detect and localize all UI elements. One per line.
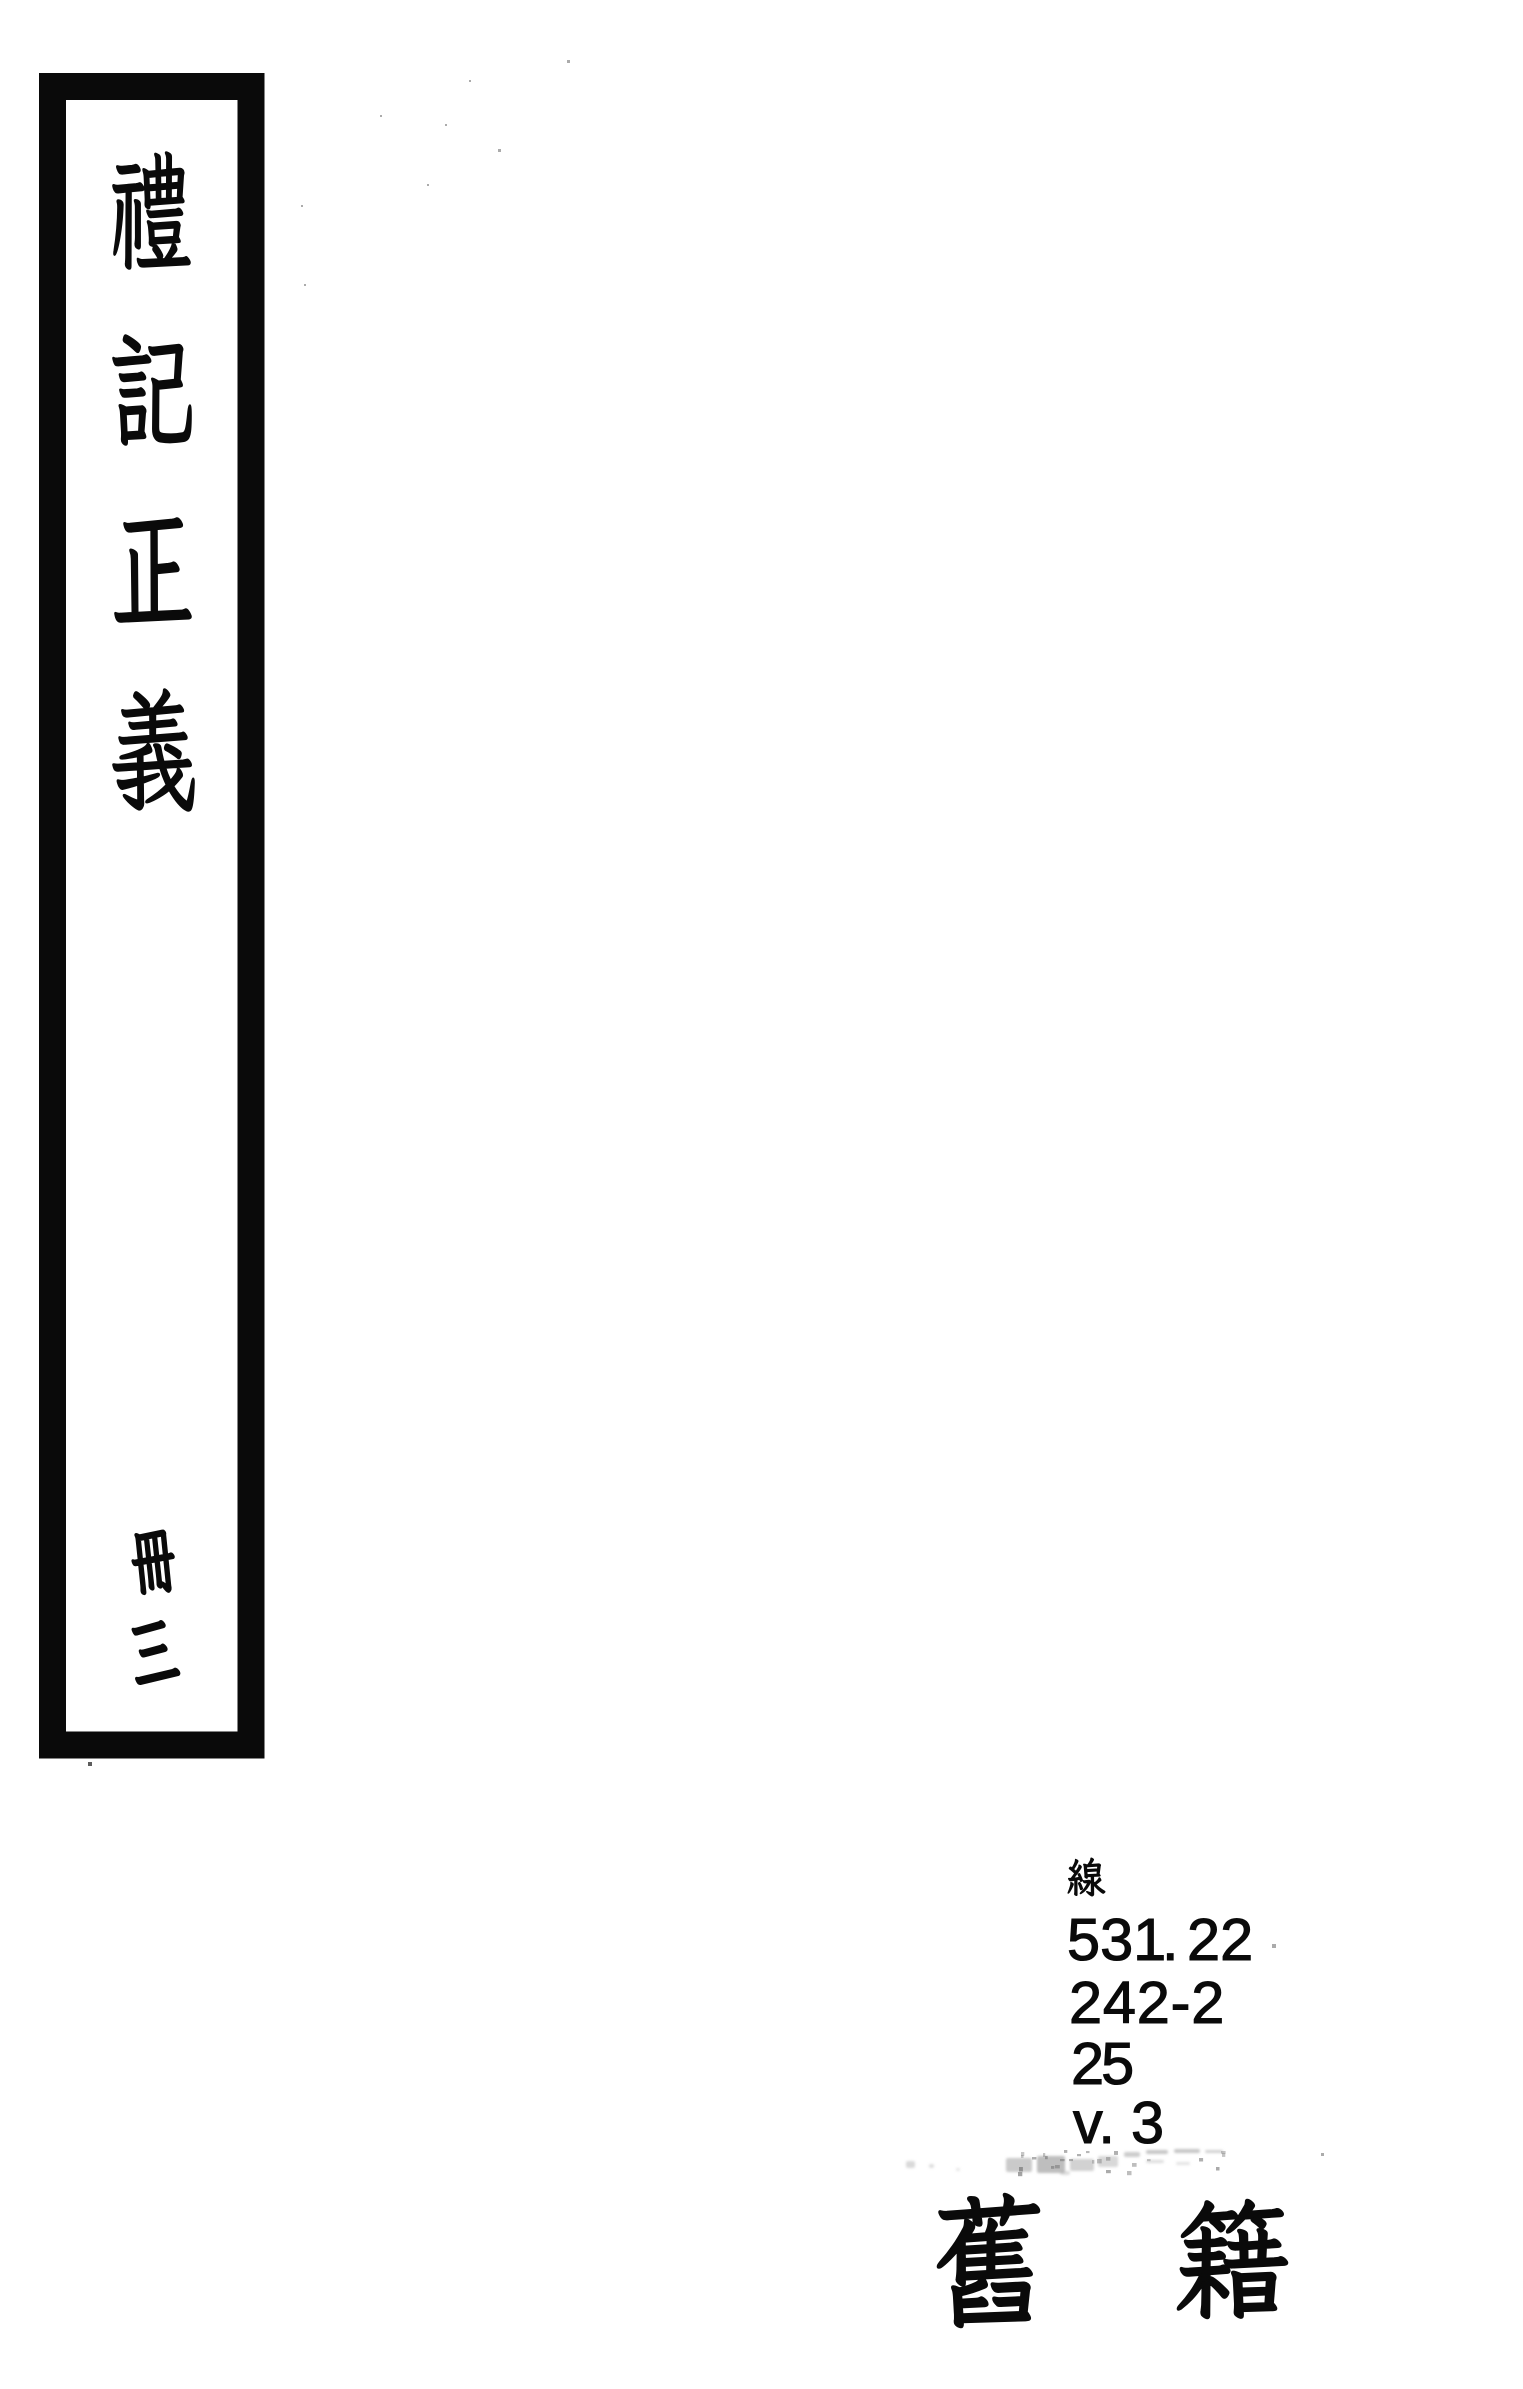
svg-text:531: 531 xyxy=(1067,1906,1166,1973)
svg-text:22: 22 xyxy=(1187,1906,1253,1973)
svg-text:3: 3 xyxy=(1131,2089,1164,2156)
svg-text:.: . xyxy=(1162,1906,1179,1973)
svg-text:v.: v. xyxy=(1073,2089,1115,2156)
svg-text:242-2: 242-2 xyxy=(1069,1969,1225,2036)
svg-text:25: 25 xyxy=(1071,2030,1132,2097)
